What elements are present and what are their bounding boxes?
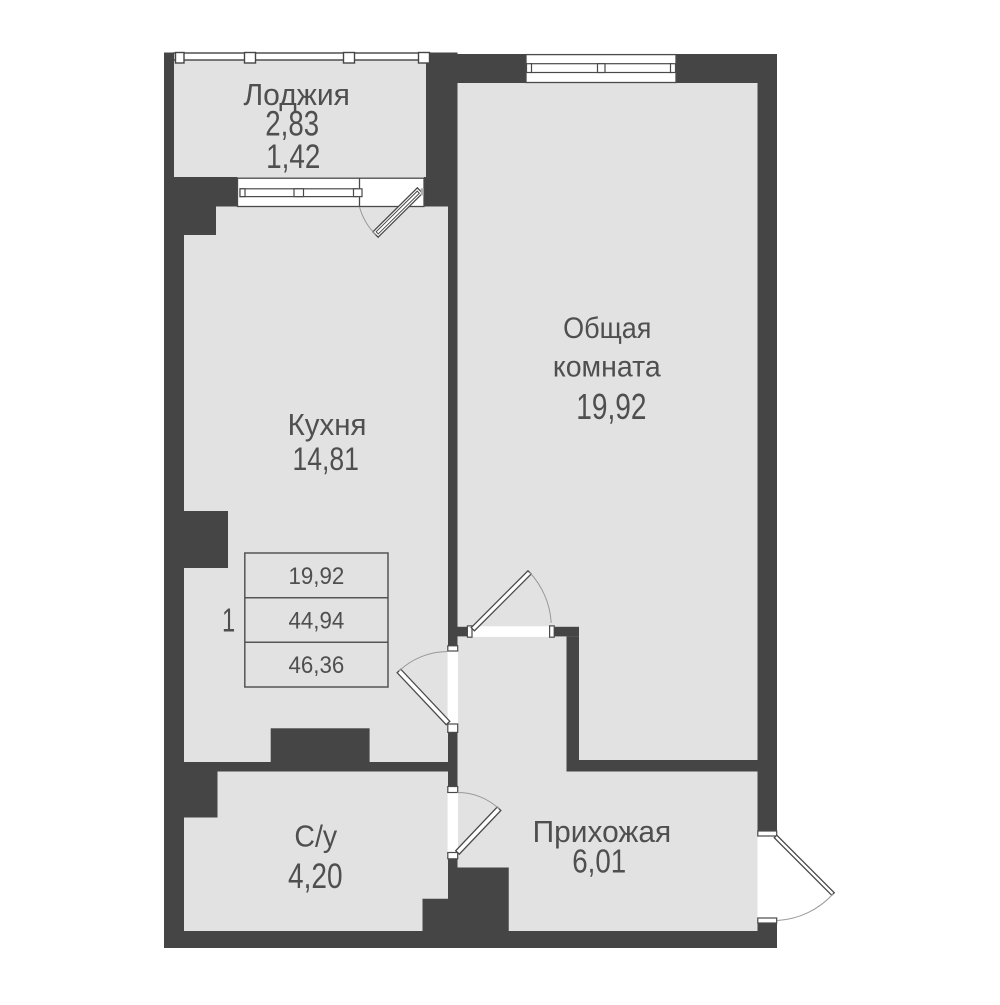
svg-text:14,81: 14,81 (292, 442, 358, 478)
svg-text:46,36: 46,36 (288, 651, 344, 678)
svg-text:1: 1 (222, 603, 235, 640)
svg-text:19,92: 19,92 (288, 562, 344, 589)
svg-text:44,94: 44,94 (288, 607, 344, 634)
svg-text:С/у: С/у (294, 819, 337, 853)
svg-text:1,42: 1,42 (266, 137, 320, 175)
svg-text:6,01: 6,01 (572, 843, 626, 880)
svg-text:4,20: 4,20 (288, 856, 342, 896)
svg-text:Кухня: Кухня (288, 408, 367, 442)
svg-text:комната: комната (553, 351, 661, 384)
svg-text:19,92: 19,92 (576, 387, 646, 427)
svg-text:Общая: Общая (563, 312, 651, 346)
